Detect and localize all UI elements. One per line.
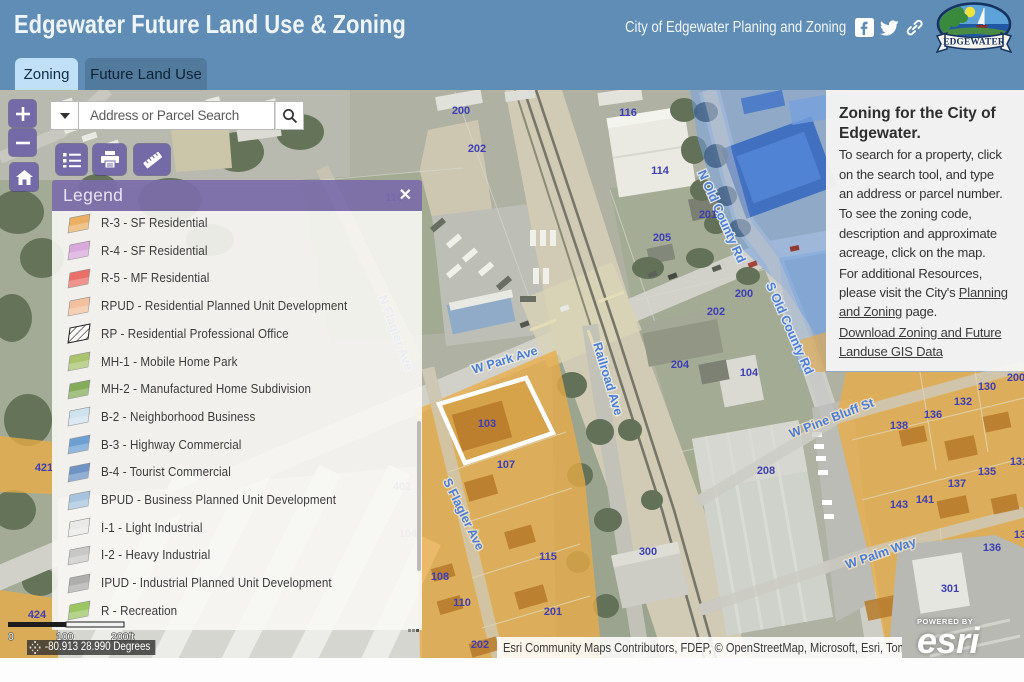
svg-text:0: 0 bbox=[8, 631, 14, 643]
svg-text:EDGEWATER: EDGEWATER bbox=[943, 38, 1005, 48]
